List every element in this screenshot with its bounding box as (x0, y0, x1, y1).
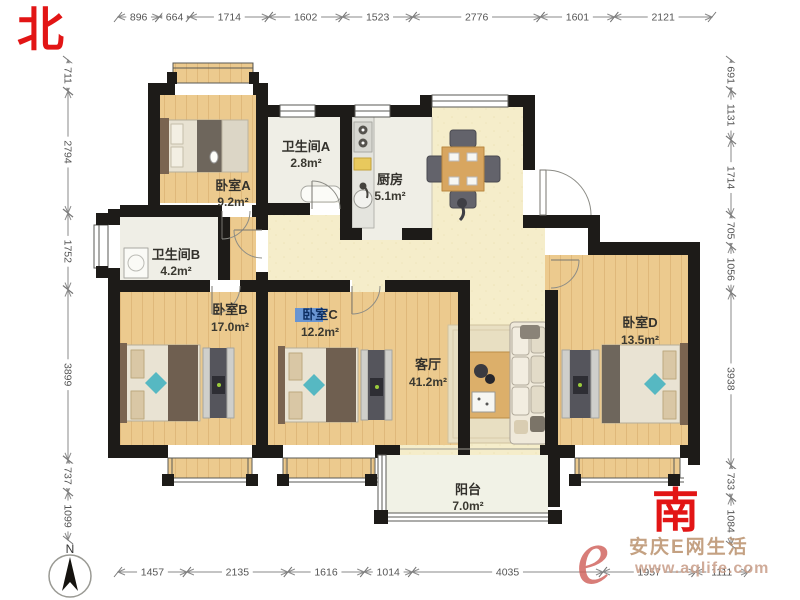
dimension-label: 3938 (725, 367, 737, 391)
room-area: 17.0m² (211, 320, 249, 334)
dimension-label: 664 (166, 12, 184, 24)
room-label: 卧室A (215, 178, 251, 193)
dimension-label: 2776 (465, 12, 489, 24)
dimension-segment: 1601 (537, 11, 619, 24)
entry-door-icon (540, 170, 591, 215)
dimension-segment: 1523 (339, 11, 417, 24)
dimension-chain-bottom: 1457213516161014403519571111 (114, 566, 752, 579)
dimension-label: 1602 (294, 12, 318, 24)
washer-icon (124, 248, 148, 278)
room-label: 阳台 (455, 482, 481, 497)
compass-n-label: N (66, 542, 75, 556)
dimension-label: 1099 (62, 504, 74, 528)
dimension-chain-left: 7112794175238997371099 (62, 56, 75, 544)
dimension-label: 1084 (725, 510, 737, 534)
window-icon (432, 95, 508, 107)
dimension-segment: 2135 (183, 566, 292, 579)
dimension-segment: 1602 (265, 11, 347, 24)
window-icon (355, 105, 390, 117)
room-label: 卫生间A (282, 139, 331, 154)
room-area: 12.2m² (301, 325, 339, 339)
dimension-segment: 2776 (409, 11, 545, 24)
dimension-segment: 737 (62, 456, 75, 496)
dimension-label: 2135 (226, 567, 250, 579)
dimension-segment: 1714 (725, 136, 738, 219)
north-label: 北 (17, 8, 64, 55)
room-label: 客厅 (415, 357, 441, 372)
dimension-segment: 691 (725, 56, 738, 94)
room-area: 4.2m² (160, 264, 191, 278)
room-label: 卧室D (622, 315, 657, 330)
room-label: 卧室C (302, 307, 338, 322)
bed-icon (120, 343, 200, 423)
dimension-label: 1014 (377, 567, 401, 579)
dimension-segment: 1752 (62, 209, 75, 294)
dimension-label: 705 (725, 222, 737, 240)
room-area: 5.1m² (374, 189, 405, 203)
dimension-label: 691 (725, 66, 737, 84)
bed-icon (602, 343, 688, 425)
dimension-segment: 1099 (62, 488, 75, 544)
dimension-label: 1714 (725, 166, 737, 190)
compass: N (49, 542, 91, 597)
room-area: 2.8m² (290, 156, 321, 170)
dimension-segment: 2121 (610, 11, 716, 24)
bed-icon (160, 118, 248, 174)
dimension-label: 2121 (651, 12, 675, 24)
room-label: 厨房 (377, 172, 403, 187)
compass-needle-icon (62, 557, 78, 591)
dimension-label: 1111 (711, 567, 732, 579)
bay-window-icon (569, 458, 684, 486)
room-area: 7.0m² (452, 499, 483, 513)
dimension-label: 1957 (638, 567, 662, 579)
sofa-icon (510, 322, 548, 444)
bay-window-icon (167, 63, 259, 84)
wardrobe-icon (562, 350, 599, 418)
south-label: 南 (652, 489, 699, 536)
dimension-segment: 1014 (360, 566, 416, 579)
dimension-label: 3899 (62, 363, 74, 387)
room-area: 13.5m² (621, 333, 659, 347)
dimension-label: 1457 (141, 567, 165, 579)
window-icon (280, 105, 315, 117)
room-area: 9.2m² (217, 195, 248, 209)
bay-window-icon (277, 458, 379, 486)
room-label: 卧室B (212, 302, 247, 317)
dimension-segment: 1957 (599, 566, 700, 579)
kitchen-counter-icon (352, 117, 374, 228)
dimension-segment: 1111 (691, 566, 752, 579)
bay-window-icon (94, 213, 108, 278)
dimension-segment: 1616 (284, 566, 368, 579)
dimension-segment: 705 (725, 211, 738, 250)
dimension-segment: 664 (155, 11, 194, 24)
dimension-segment: 3899 (62, 286, 75, 464)
dimension-label: 1616 (314, 567, 338, 579)
floor-plan-page: 北 南 (0, 0, 800, 600)
dimension-segment: 733 (725, 461, 738, 501)
room-label: 卫生间B (152, 247, 200, 262)
dimension-label: 1523 (366, 12, 390, 24)
dimension-label: 896 (130, 12, 148, 24)
dimension-label: 733 (725, 473, 737, 491)
bed-icon (278, 346, 358, 424)
dimension-label: 1601 (566, 12, 590, 24)
dimension-segment: 1084 (725, 493, 738, 549)
dimension-label: 4035 (496, 567, 520, 579)
dimension-label: 737 (62, 467, 74, 485)
coffee-table-icon (466, 352, 510, 418)
bay-window-icon (162, 458, 258, 486)
wardrobe-icon (203, 348, 234, 418)
dimension-label: 711 (62, 67, 74, 84)
room-area: 41.2m² (409, 375, 447, 389)
dimension-segment: 1131 (725, 86, 738, 144)
dimension-label: 1714 (218, 12, 242, 24)
dimension-label: 1056 (725, 258, 737, 282)
dimension-segment: 2794 (62, 87, 75, 217)
wardrobe-icon (361, 350, 392, 420)
bathtub-icon (301, 186, 341, 202)
dimension-segment: 1714 (186, 11, 273, 24)
dimension-segment: 711 (62, 56, 75, 95)
dimension-segment: 4035 (408, 566, 607, 579)
dimension-chain-right: 69111311714705105639387331084 (725, 56, 738, 549)
dimension-segment: 3938 (725, 288, 738, 469)
dimension-segment: 1457 (114, 566, 191, 579)
dimension-label: 1752 (62, 240, 74, 264)
dimension-chain-top: 896664171416021523277616012121 (114, 11, 716, 24)
dimension-label: 2794 (62, 140, 74, 164)
dimension-label: 1131 (725, 104, 737, 127)
